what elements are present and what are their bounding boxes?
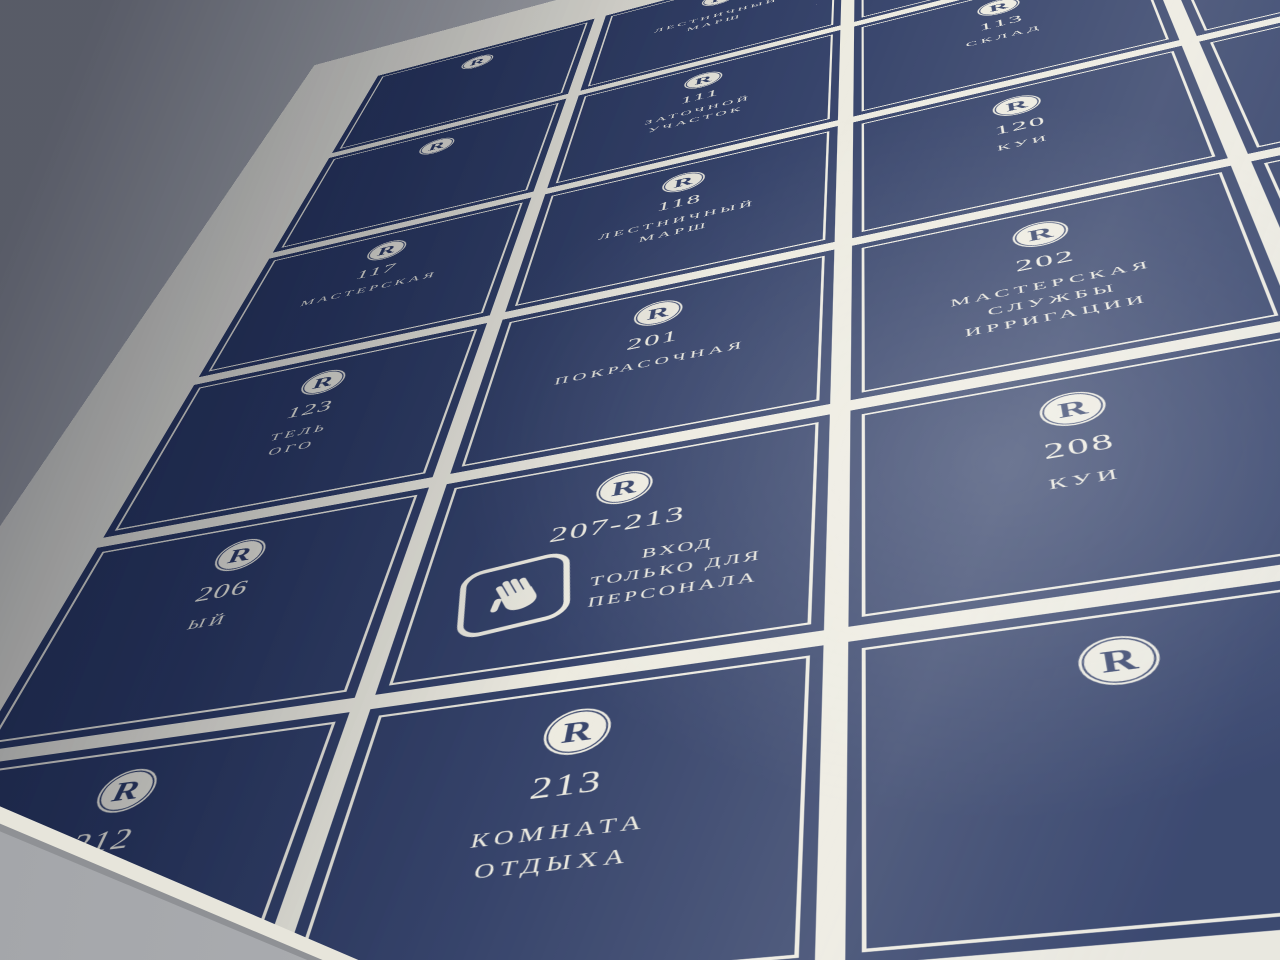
room-label: МАСТЕРСКАЯ СЛУЖБЫ ИРРИГАЦИИ	[950, 256, 1164, 344]
sign-content: R 207-213 ВХОД ТОЛЬКО ДЛЯ ПЕРСОНАЛА	[375, 414, 830, 694]
sign-tile-staff-only: R 207-213 ВХОД ТОЛЬКО ДЛЯ ПЕРСОНАЛА	[375, 414, 830, 694]
room-label: ЫЙ	[183, 609, 233, 636]
sign-sheet: R RЛЕСТНИЧНЫЙ МАРШ RГИДРАВЛИЧЕСКАЯ СЛУЖБ…	[0, 0, 1280, 960]
sign-content: R206ЫЙ	[0, 487, 429, 752]
room-number: 213	[527, 765, 606, 804]
brand-logo-r-icon: R	[1011, 217, 1071, 251]
room-number: 201	[625, 327, 680, 353]
sign-tile: R	[845, 565, 1280, 960]
room-label: КОМНАТА ОТДЫХА	[459, 806, 650, 890]
brand-logo-r-icon: R	[416, 135, 457, 158]
room-number: 202	[1014, 247, 1077, 274]
brand-logo-r-icon: R	[1075, 631, 1165, 689]
brand-logo-r-icon: R	[296, 366, 350, 398]
brand-logo-r-icon: R	[593, 467, 655, 508]
room-label: ТЕЛЬ ОГО	[259, 419, 331, 462]
sign-content: R	[845, 565, 1280, 960]
staff-only-row: ВХОД ТОЛЬКО ДЛЯ ПЕРСОНАЛА	[438, 519, 777, 640]
brand-logo-r-icon: R	[632, 296, 685, 329]
room-label: КУИ	[1047, 462, 1125, 496]
stop-hand-icon	[456, 549, 570, 642]
brand-logo-r-icon: R	[363, 237, 410, 264]
brand-logo-r-icon: R	[208, 535, 271, 574]
sign-tile: R206ЫЙ	[0, 487, 429, 752]
photo-stage: R RЛЕСТНИЧНЫЙ МАРШ RГИДРАВЛИЧЕСКАЯ СЛУЖБ…	[0, 0, 1280, 960]
brand-logo-r-icon: R	[459, 52, 496, 72]
brand-logo-r-icon: R	[1037, 387, 1109, 431]
brand-logo-r-icon: R	[539, 704, 614, 758]
room-number: 123	[284, 397, 337, 421]
room-label: ЛЕСТНИЧНЫЙ МАРШ	[651, 0, 779, 43]
room-number: 208	[1042, 430, 1118, 463]
room-number: 206	[192, 576, 254, 605]
room-label: ВХОД ТОЛЬКО ДЛЯ ПЕРСОНАЛА	[584, 524, 765, 614]
brand-logo-r-icon: R	[88, 765, 165, 816]
